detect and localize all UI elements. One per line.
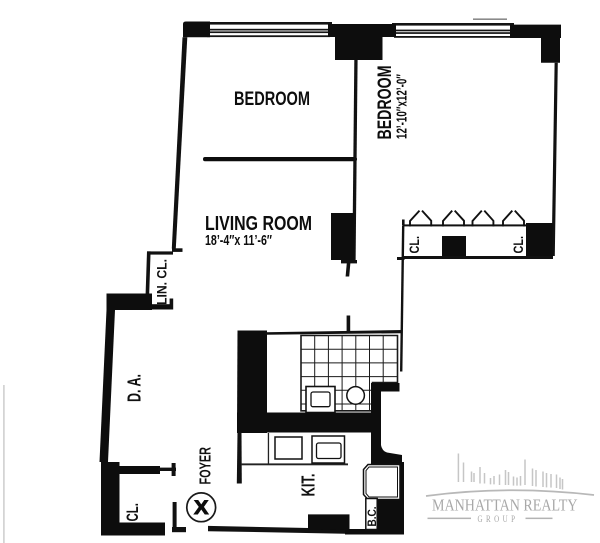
svg-text:FOYER: FOYER (198, 447, 215, 485)
svg-text:CL.: CL. (123, 503, 142, 522)
svg-text:X: X (194, 498, 209, 519)
svg-text:KIT.: KIT. (298, 474, 319, 497)
svg-text:CL.: CL. (406, 236, 422, 254)
svg-text:D. A.: D. A. (124, 374, 145, 402)
svg-text:GROUP: GROUP (478, 514, 519, 524)
svg-text:BEDROOM: BEDROOM (234, 88, 310, 110)
svg-text:B.C.: B.C. (367, 507, 379, 527)
svg-text:MANHATTAN REALTY: MANHATTAN REALTY (432, 496, 578, 515)
svg-text:LIN. CL.: LIN. CL. (154, 259, 170, 305)
svg-text:CL.: CL. (510, 236, 526, 254)
svg-text:12’-10″x12’-0″: 12’-10″x12’-0″ (394, 74, 411, 139)
svg-text:18’-4″x 11’-6″: 18’-4″x 11’-6″ (205, 232, 272, 249)
